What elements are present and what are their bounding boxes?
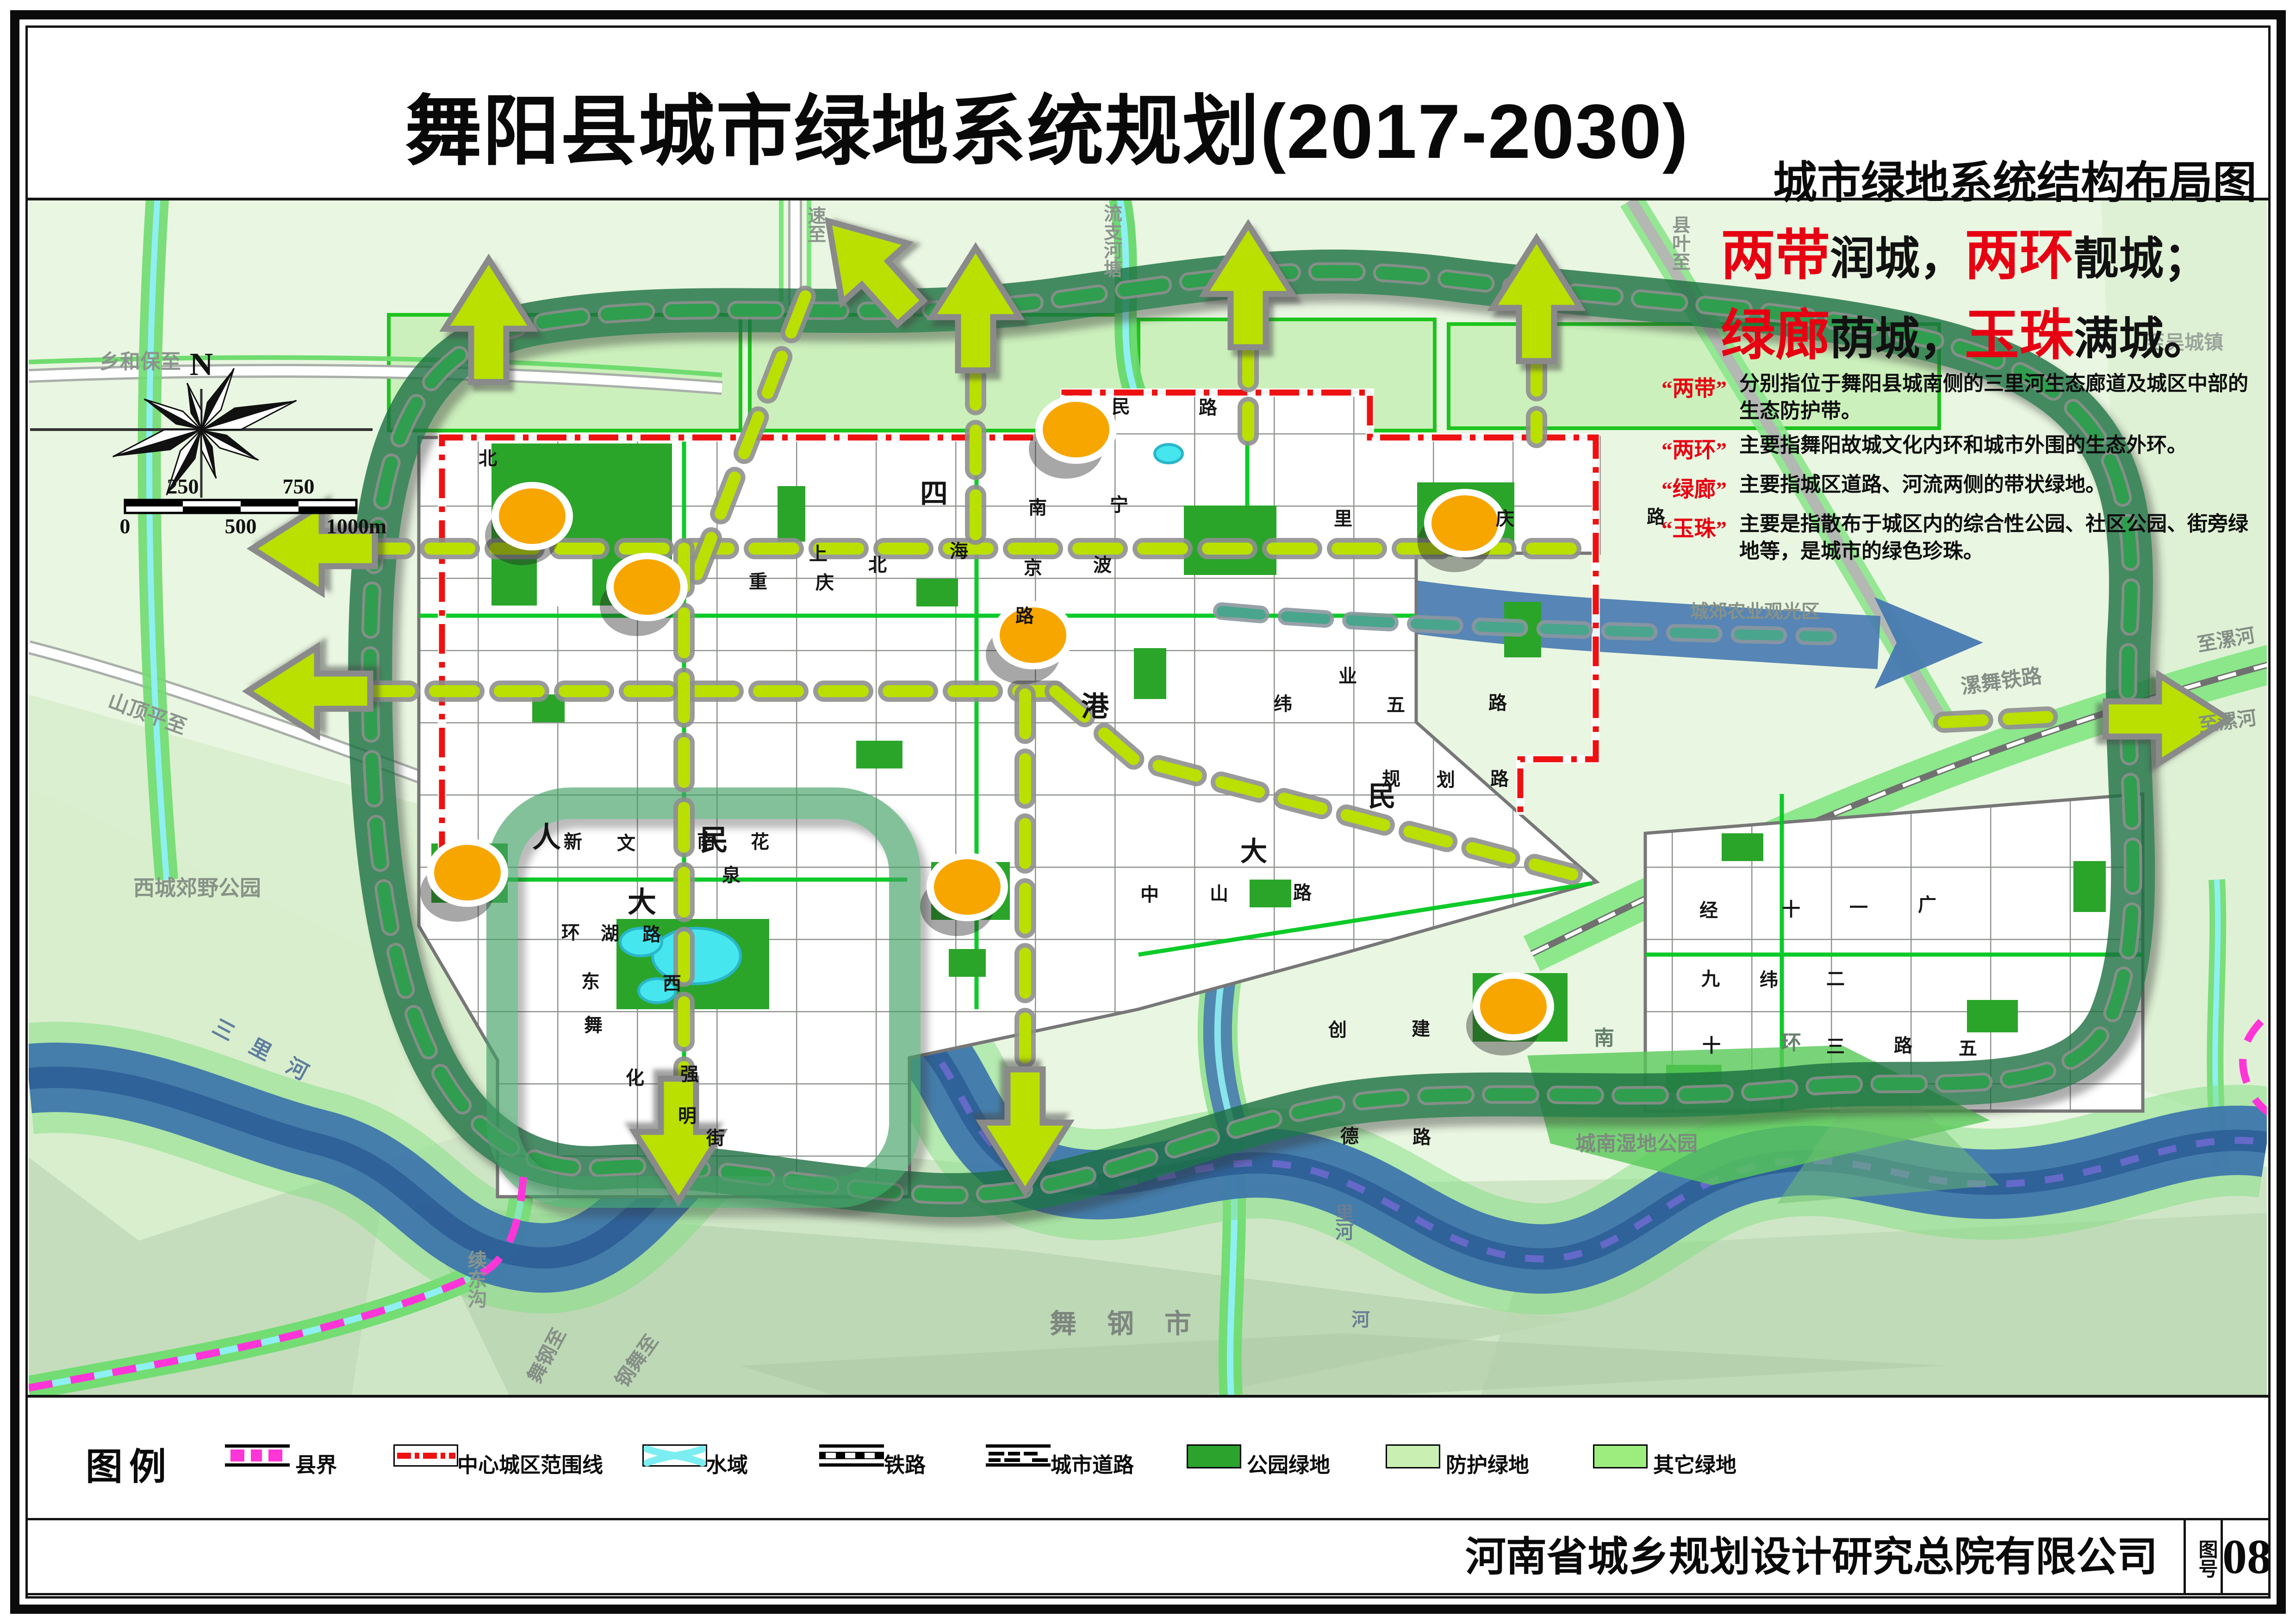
footer-bottom-divider — [28, 1593, 2268, 1595]
legend-title: 图例 — [86, 1437, 173, 1491]
sheet-number-label: 图号 — [2185, 1524, 2221, 1593]
note-term: “两带” — [1661, 370, 1739, 425]
jade-pearl — [499, 488, 566, 544]
slogan-text: 靓城； — [2074, 234, 2209, 284]
map-subtitle: 城市绿地系统结构布局图 — [1773, 147, 2257, 211]
slogan-text: 荫城， — [1830, 314, 1965, 364]
slogan-text: 润城， — [1830, 234, 1965, 284]
legend-label: 铁路 — [884, 1448, 926, 1478]
note-row: “玉珠”主要是指散布于城区内的综合性公园、社区公园、街旁绿地等，是城市的绿色珍珠… — [1661, 511, 2263, 565]
slogan-text: 两带 — [1721, 225, 1830, 286]
footer-company: 河南省城乡规划设计研究总院有限公司 — [29, 1522, 2158, 1592]
legend-label: 城市道路 — [1051, 1448, 1134, 1478]
svg-text:0: 0 — [120, 514, 131, 538]
note-text: 主要指舞阳故城文化内环和城市外围的生态外环。 — [1739, 432, 2263, 464]
legend-label: 公园绿地 — [1247, 1448, 1330, 1478]
svg-text:250: 250 — [167, 475, 199, 498]
jade-pearl — [1043, 402, 1109, 457]
note-term: “两环” — [1661, 432, 1739, 464]
svg-text:1000m: 1000m — [326, 514, 386, 538]
jade-pearl — [614, 559, 680, 615]
sheet-number: 08 — [2222, 1522, 2267, 1592]
note-term: “玉珠” — [1661, 511, 1739, 565]
slogan-line-1: 两带润城，两环靓城； — [1721, 211, 2209, 290]
jade-pearl — [434, 845, 501, 900]
map-bottom-divider — [28, 1395, 2268, 1398]
jade-pearl — [934, 859, 1001, 915]
slogan-text: 玉珠 — [1965, 306, 2074, 366]
page-title: 舞阳县城市绿地系统规划(2017-2030) — [405, 69, 1689, 180]
plan-sheet: N 25075005001000m 乡和保至速至流支河塘县叶至至吴城镇山顶平至西… — [0, 0, 2296, 1624]
jade-pearl — [1480, 979, 1547, 1034]
slogan-line-2: 绿廊荫城，玉珠满城。 — [1721, 291, 2209, 370]
note-text: 主要指城区道路、河流两侧的带状绿地。 — [1739, 471, 2263, 503]
legend-label: 县界 — [295, 1448, 337, 1478]
jade-pearl — [1431, 495, 1498, 551]
note-row: “两环”主要指舞阳故城文化内环和城市外围的生态外环。 — [1661, 432, 2263, 464]
note-term: “绿廊” — [1661, 471, 1739, 503]
jade-pearl — [1000, 607, 1066, 663]
svg-text:500: 500 — [225, 514, 257, 538]
note-text: 主要是指散布于城区内的综合性公园、社区公园、街旁绿地等，是城市的绿色珍珠。 — [1739, 511, 2263, 565]
slogan-text: 满城。 — [2074, 314, 2209, 364]
slogan-text: 两环 — [1965, 225, 2074, 286]
svg-text:N: N — [190, 347, 213, 382]
legend-label: 防护绿地 — [1446, 1448, 1529, 1478]
note-text: 分别指位于舞阳县城南侧的三里河生态廊道及城区中部的生态防护带。 — [1739, 370, 2263, 425]
svg-text:750: 750 — [283, 475, 315, 498]
legend-label: 中心城区范围线 — [457, 1448, 603, 1478]
note-row: “两带”分别指位于舞阳县城南侧的三里河生态廊道及城区中部的生态防护带。 — [1661, 370, 2263, 425]
legend-bottom-divider — [28, 1518, 2268, 1520]
legend-notes: “两带”分别指位于舞阳县城南侧的三里河生态廊道及城区中部的生态防护带。“两环”主… — [1661, 370, 2263, 572]
note-row: “绿廊”主要指城区道路、河流两侧的带状绿地。 — [1661, 471, 2263, 503]
legend-label: 水域 — [706, 1448, 748, 1478]
slogan-text: 绿廊 — [1721, 306, 1830, 366]
legend-band: 图例 县界 中心城区范围线 水域 铁路 城市道路公园绿地防护绿地其它绿地 — [29, 1396, 2267, 1517]
legend-label: 其它绿地 — [1653, 1448, 1736, 1478]
